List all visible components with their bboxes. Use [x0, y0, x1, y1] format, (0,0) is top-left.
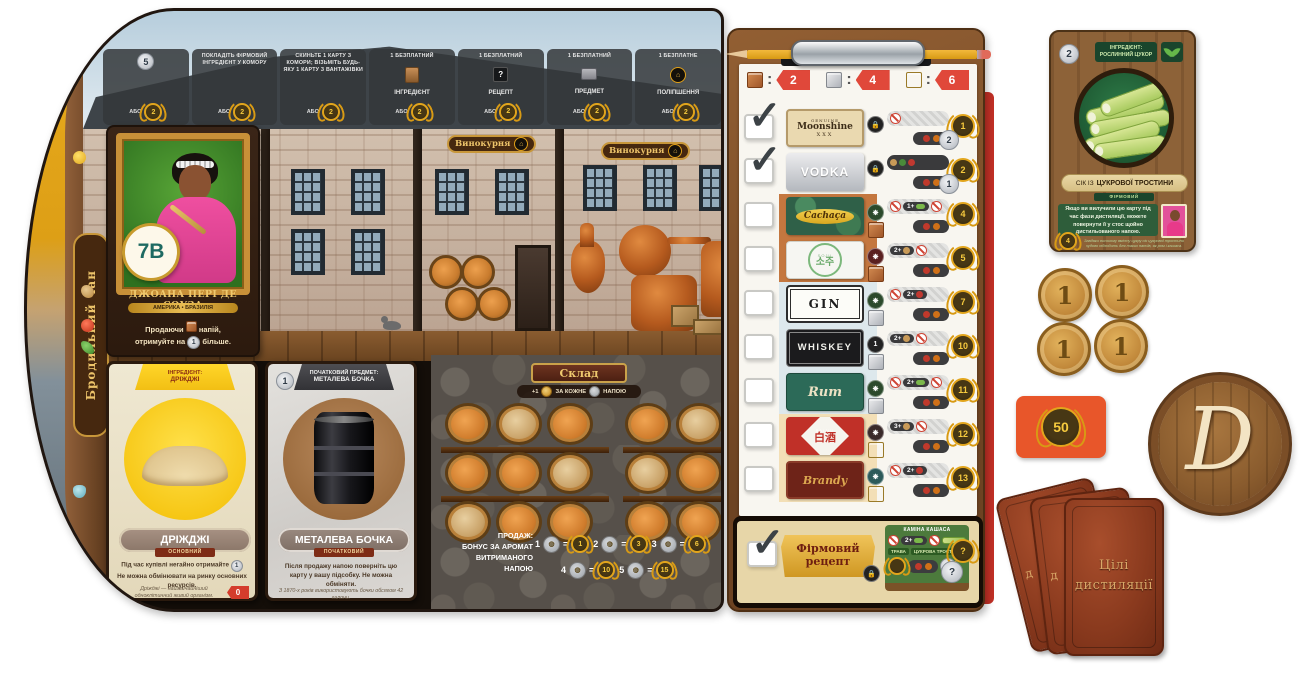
checkbox[interactable] [744, 202, 774, 228]
checkbox[interactable] [744, 422, 774, 448]
spirit-cube-icon [186, 321, 197, 332]
checkmark-icon: ✓ [751, 523, 785, 563]
yeast-illustration [124, 398, 246, 520]
forbidden-icon [890, 465, 901, 476]
requirement-pill: 2+ [903, 290, 927, 299]
forbidden-icon [929, 535, 940, 546]
still-pill [913, 352, 949, 365]
requirement-pill: 3+ [890, 422, 914, 431]
recipe-pills [887, 111, 949, 126]
laurel-badge: 10 [951, 334, 975, 358]
recipe-pills: 2+ [887, 287, 949, 302]
window [643, 165, 677, 211]
forbidden-icon [890, 289, 901, 300]
laurel-badge: 7 [951, 290, 975, 314]
barrel-illustration [283, 398, 405, 520]
still-pill [913, 396, 949, 409]
action-swap-card[interactable]: СКИНЬТЕ 1 КАРТУ З КОМОРИ; ВІЗЬМІТЬ БУДЬ-… [280, 49, 366, 125]
still-pill [913, 264, 949, 277]
checkbox[interactable]: ✓ [747, 541, 777, 567]
lock-icon: 🔒 [867, 160, 884, 177]
action-free-ingredient[interactable]: 1 БЕЗПЛАТНИЙ ІНГРЕДІЄНТ АБО2 [369, 49, 455, 125]
aroma-token-icon: ◍ [601, 536, 618, 553]
warehouse-bonus-note: +1 ЗА КОЖНЕ НАПОЮ [517, 385, 641, 398]
cube-cost-row: :2 :4 :6 [739, 70, 977, 90]
yeast-icon: ❋ [867, 204, 884, 221]
window [435, 169, 469, 215]
warehouse-sign: Склад [531, 363, 627, 383]
sugar-cane-icon [916, 380, 925, 385]
character-region: АМЕРИКА • БРАЗИЛІЯ [128, 303, 238, 313]
silver-cube-icon [868, 398, 884, 414]
coin-icon: 1 [231, 560, 243, 572]
action-text: 1 БЕЗПЛАТНИЙ [568, 53, 611, 60]
grain-icon [903, 423, 910, 430]
spirit-row-soju[interactable]: SOJU소주 ❋ 2+ 5 [739, 238, 977, 282]
cost-coin-badge: 2 [1059, 44, 1079, 64]
coin-badge: 1 [939, 174, 959, 194]
forbidden-icon [888, 535, 899, 546]
aroma-token-icon: ◍ [660, 536, 677, 553]
item-card-icon [581, 68, 597, 80]
cost-silver: :4 [826, 70, 889, 90]
signature-recipe-strip[interactable]: ✓ Фірмовий рецепт 🔒 КАМІНА КАШАСА 2+ Т [733, 516, 983, 608]
requirement-pill: 2+ [890, 246, 914, 255]
action-text: 1 БЕЗПЛАТНИЙ [390, 53, 433, 60]
action-free-upgrade[interactable]: 1 БЕЗПЛАТНЕ ⌂ ПОЛІПШЕННЯ АБО2 [635, 49, 721, 125]
sugarcane-ingredient-card[interactable]: 2 ІНГРЕДІЄНТ: РОСЛИННИЙ ЦУКОР СІК ІЗ ЦУК… [1049, 30, 1196, 252]
barrel [625, 452, 671, 494]
requirement-pill: 1+ [903, 202, 929, 211]
silver-cube-icon [868, 354, 884, 370]
laurel-badge: 10 [597, 561, 615, 579]
sign-label: Винокурня [609, 146, 664, 156]
portrait-face [179, 165, 211, 201]
laurel-badge: 4 [951, 202, 975, 226]
action-label: РЕЦЕПТ [489, 90, 513, 96]
yeast-icon: ❋ [867, 468, 884, 485]
barrel [496, 452, 542, 494]
spirit-row-rum[interactable]: Rum ❋ 2+ 11 [739, 370, 977, 414]
goal-card-front[interactable]: Цілі дистиляції [1064, 498, 1164, 656]
laurel-badge: 50 [1041, 407, 1081, 447]
signature-recipe-plaque: Фірмовий рецепт [781, 535, 875, 577]
table-surface: 5 АБО2 ПОКЛАДІТЬ ФІРМОВИЙ ІНГРЕДІЄНТ У К… [0, 0, 1299, 685]
plant-icon [899, 159, 906, 166]
barrel [547, 452, 593, 494]
price-tag: 2 [776, 70, 810, 90]
spirit-row-baijiu[interactable]: BAIJIU 白酒 ❋ 3+ 12 [739, 414, 977, 458]
aroma-token-icon: ◍ [569, 562, 586, 579]
upgrade-icon: ⌂ [670, 67, 686, 83]
spirit-label-gin: GIN [786, 285, 864, 323]
checkbox[interactable] [744, 466, 774, 492]
coin-icon [541, 386, 552, 397]
spirit-label-rum: Rum [786, 373, 864, 411]
checkbox[interactable] [744, 246, 774, 272]
character-card[interactable]: 7B ДЖОАНА ПЕРІ ДЕ СОУЗА АМЕРИКА • БРАЗИЛ… [106, 125, 260, 357]
character-thumbnail [1161, 204, 1187, 238]
window [583, 165, 617, 211]
spirit-label-soju: SOJU소주 [786, 241, 864, 279]
soju-ring: SOJU소주 [808, 243, 842, 277]
window [291, 169, 325, 215]
sign-label: Винокурня [455, 139, 510, 149]
action-text: СКИНЬТЕ 1 КАРТУ З КОМОРИ; ВІЗЬМІТЬ БУДЬ-… [282, 53, 364, 74]
coin-unknown-badge: ? [941, 561, 963, 583]
silver-cube-icon [826, 72, 842, 88]
window [291, 229, 325, 275]
action-text: ПОКЛАДІТЬ ФІРМОВИЙ ІНГРЕДІЄНТ У КОМОРУ [194, 53, 276, 67]
laurel-badge: 5 [951, 246, 975, 270]
aroma-bonus-row: 4◍=10 5◍=15 [561, 561, 674, 579]
laurel-badge: 6 [688, 535, 706, 553]
requirement-pill: 2+ [903, 378, 929, 387]
parchment: ✓ Фірмовий рецепт 🔒 КАМІНА КАШАСА 2+ Т [737, 521, 979, 603]
laurel-badge: 15 [656, 561, 674, 579]
barrel-chip-icon [589, 386, 600, 397]
recipe-pills: 2+ [887, 243, 949, 258]
grass-tag: ТРАВА [888, 548, 909, 555]
recipe-pills [887, 155, 949, 170]
action-coins[interactable]: 5 АБО2 [103, 49, 189, 125]
checkbox[interactable] [744, 290, 774, 316]
coin-badge: 2 [939, 130, 959, 150]
laurel-badge [888, 557, 906, 575]
still-pill [913, 308, 949, 321]
spirit-label-whiskey: WHISKEY [786, 329, 864, 367]
price-tag: 4 [856, 70, 890, 90]
laurel-badge: 2 [499, 103, 517, 121]
forbidden-icon [890, 377, 901, 388]
action-label: ПОЛІПШЕННЯ [657, 90, 699, 96]
beam [413, 129, 422, 361]
checkmark-icon: ✓ [748, 96, 782, 136]
aroma-token-icon: ◍ [543, 536, 560, 553]
yeast-ingredient-card[interactable]: ІНГРЕДІЄНТ: ДРІЖДЖІ ДРІЖДЖІ ОСНОВНИЙ Під… [106, 361, 258, 601]
laurel-badge: 2 [677, 103, 695, 121]
character-number-badge: 7B [122, 223, 180, 281]
requirement-pill: 2+ [890, 334, 914, 343]
logo-letter: D [1186, 397, 1255, 483]
yeast-icon: ❋ [867, 292, 884, 309]
sugar-cane-icon [916, 204, 925, 209]
grain-icon [903, 335, 910, 342]
player-board: 5 АБО2 ПОКЛАДІТЬ ФІРМОВИЙ ІНГРЕДІЄНТ У К… [24, 8, 724, 612]
goal-card-title: Цілі дистиляції [1066, 556, 1162, 595]
barrel [625, 403, 671, 445]
recipe-pills: 2+ [887, 331, 949, 346]
card-subtitle: ОСНОВНИЙ [155, 548, 215, 557]
laurel-badge: 4 [1059, 232, 1077, 250]
grain-icon [890, 159, 897, 166]
card-title: СІК ІЗ ЦУКРОВОЇ ТРОСТИНИ [1061, 174, 1188, 192]
aroma-bonus-note: ПРОДАЖ: БОНУС ЗА АРОМАТ ВИТРИМАНОГО НАПО… [437, 531, 533, 575]
action-free-item[interactable]: 1 БЕЗПЛАТНИЙ ПРЕДМЕТ АБО2 [547, 49, 633, 125]
laurel-badge: 12 [951, 422, 975, 446]
warehouse-section: Склад +1 ЗА КОЖНЕ НАПОЮ [431, 355, 724, 612]
sugarcane-illustration [1074, 68, 1174, 168]
checkbox[interactable]: ✓ [744, 114, 774, 140]
yeast-icon: ❋ [867, 248, 884, 265]
distillery-sign: Винокурня ⌂ [447, 135, 536, 153]
still-neck [580, 223, 594, 247]
lock-icon: 🔒 [867, 116, 884, 133]
recipe-pills: 1+ [887, 199, 949, 214]
spirit-row-vodka[interactable]: ✓ VODKA 🔒 2 1 [739, 150, 977, 194]
yeast-pile [142, 446, 228, 486]
barrel [547, 403, 593, 445]
recipe-card-icon: ? [493, 67, 508, 82]
action-label: ПРЕДМЕТ [575, 89, 604, 95]
barrel [496, 403, 542, 445]
spirit-label-baijiu: BAIJIU 白酒 [786, 417, 864, 455]
forbidden-icon [890, 113, 901, 124]
house-icon: ⌂ [514, 137, 528, 151]
fruit-icon [916, 467, 923, 474]
forbidden-icon [890, 201, 901, 212]
forbidden-icon [931, 377, 942, 388]
character-ability: Продаючи напій, отримуйте на 1 більше. [112, 321, 254, 349]
gold-cube-icon [906, 72, 922, 88]
checklist-paper: :2 :4 :6 ✓ GENUINE Moonshine XXX 🔒 1 2 [739, 64, 977, 516]
metal-barrel [314, 412, 374, 504]
card-flavor: З 1870-х років використовують бочки обся… [278, 588, 404, 603]
goal-card-letter: д [1049, 568, 1058, 583]
action-free-recipe[interactable]: 1 БЕЗПЛАТНИЙ ? РЕЦЕПТ АБО2 [458, 49, 544, 125]
grain-icon [73, 151, 86, 164]
score-50-card[interactable]: 50 [1016, 396, 1106, 458]
goal-card-letter: д [1023, 566, 1034, 581]
yeast-icon: ❋ [867, 424, 884, 441]
window [699, 165, 724, 211]
gold-cube-icon [868, 486, 884, 502]
card-flavor: Завдяки високому вмісту цукру сік цукров… [1081, 238, 1187, 251]
window [495, 169, 529, 215]
card-rule: Після продажу напою поверніть цю карту у… [276, 562, 406, 589]
laurel-badge: 2 [322, 103, 340, 121]
spirit-row-cachaca[interactable]: Cachaça ❋ 1+ 4 [739, 194, 977, 238]
juniper-icon [916, 291, 923, 298]
action-label: ІНГРЕДІЄНТ [394, 90, 430, 96]
clipboard-clip [791, 40, 925, 66]
coin-icon: 1 [187, 336, 200, 349]
laurel-badge: 2 [144, 103, 162, 121]
barrel [676, 403, 722, 445]
barrel [477, 287, 511, 321]
spirit-label-cachaca: Cachaça [786, 197, 864, 235]
barrel [445, 452, 491, 494]
wheat-icon [81, 285, 94, 298]
barrel [445, 403, 491, 445]
spirit-label-vodka: VODKA [786, 153, 864, 191]
spirit-row-brandy[interactable]: Brandy ❋ 2+ 13 [739, 458, 977, 502]
brown-cube-icon [868, 222, 884, 238]
forbidden-icon [916, 421, 927, 432]
silver-cube-icon [868, 310, 884, 326]
price-tag: 6 [935, 70, 969, 90]
distillery-sign: Винокурня ⌂ [601, 142, 690, 160]
checkbox[interactable]: ✓ [744, 158, 774, 184]
plant-sugar-icon [1161, 42, 1183, 62]
still-pill [913, 220, 949, 233]
still-pill [913, 484, 949, 497]
card-flavor: Дріжджі — найзвичайніший одноклітинний ж… [123, 586, 225, 601]
card-header: ІНГРЕДІЄНТ: РОСЛИННИЙ ЦУКОР [1095, 42, 1157, 62]
card-subtitle: ФІРМОВИЙ [1094, 193, 1154, 201]
coin-token[interactable]: 1 [1095, 265, 1149, 319]
spirit-label-moonshine: GENUINE Moonshine XXX [786, 109, 864, 147]
laurel-badge: 2 [588, 103, 606, 121]
action-text: 1 БЕЗПЛАТНИЙ [479, 53, 522, 60]
barrel [445, 287, 479, 321]
checkbox[interactable] [744, 334, 774, 360]
coin-icon: 1 [276, 372, 294, 390]
barrel [676, 452, 722, 494]
copper-tank [701, 241, 724, 317]
sugar-cane-icon [914, 538, 923, 543]
laurel-unknown-badge: ? [951, 539, 975, 563]
copper-still-dome [619, 225, 671, 277]
coin-token[interactable]: 1 [1094, 319, 1148, 373]
laurel-badge: 11 [951, 378, 975, 402]
coin-token[interactable]: 1 [1037, 322, 1091, 376]
gold-cube-icon [868, 442, 884, 458]
coin-stack-icon: 5 [137, 53, 154, 70]
aroma-token-icon: ◍ [627, 562, 644, 579]
lock-icon: 🔒 [863, 565, 880, 582]
fruit-icon [81, 319, 94, 332]
barrel-rack-right[interactable] [625, 403, 724, 547]
action-track: 5 АБО2 ПОКЛАДІТЬ ФІРМОВИЙ ІНГРЕДІЄНТ У К… [103, 49, 721, 125]
laurel-badge: 13 [951, 466, 975, 490]
price-tag: 0 [227, 586, 249, 599]
still-pill [913, 440, 949, 453]
cost-gold: :6 [906, 70, 969, 90]
barrel-rack-left[interactable] [445, 403, 595, 547]
aroma-bonus-row: 1◍=1 2◍=3 3◍=6 [535, 535, 706, 553]
barrel [461, 255, 495, 289]
crate [693, 319, 723, 335]
yeast-icon: ❋ [867, 380, 884, 397]
recipe-pills: 3+ [887, 419, 949, 434]
spirit-row-whiskey[interactable]: WHISKEY 1 2+ 10 [739, 326, 977, 370]
beam [261, 129, 270, 361]
spirit-row-gin[interactable]: GIN ❋ 2+ 7 [739, 282, 977, 326]
action-text: 1 БЕЗПЛАТНЕ [659, 53, 698, 60]
still-pill [908, 560, 938, 573]
door [515, 245, 551, 331]
card-subtitle: ПОЧАТКОВИЙ [314, 548, 374, 557]
recipe-name: КАМІНА КАШАСА [888, 527, 966, 533]
house-icon: ⌂ [668, 144, 682, 158]
laurel-badge: 3 [630, 535, 648, 553]
laurel-badge: 1 [571, 535, 589, 553]
card-header: ІНГРЕДІЄНТ: ДРІЖДЖІ [135, 364, 235, 390]
laurel-badge: 2 [411, 103, 429, 121]
card-header: ПОЧАТКОВИЙ ПРЕДМЕТ: МЕТАЛЕВА БОЧКА [294, 364, 394, 390]
brown-cube-icon [747, 72, 763, 88]
ingredient-card-icon [405, 67, 419, 83]
fruit-icon [908, 159, 915, 166]
requirement-pill: 2+ [903, 466, 927, 475]
grain-icon [903, 247, 910, 254]
checkbox[interactable] [744, 378, 774, 404]
window [351, 229, 385, 275]
recipe-pills: 2+ [887, 463, 949, 478]
barrel [429, 255, 463, 289]
fermentation-vat-plaque: Бродильний чан [73, 233, 109, 437]
forbidden-icon [916, 245, 927, 256]
beam [555, 129, 564, 361]
copper-still-small [571, 241, 605, 293]
forbidden-icon [931, 201, 942, 212]
recipe-pills: 2+ [887, 375, 949, 390]
checkmark-icon: ✓ [748, 140, 782, 180]
cat [383, 321, 401, 330]
metal-barrel-item-card[interactable]: ПОЧАТКОВИЙ ПРЕДМЕТ: МЕТАЛЕВА БОЧКА 1 МЕТ… [265, 361, 417, 601]
coin-token[interactable]: 1 [1038, 268, 1092, 322]
spirit-label-brandy: Brandy [786, 461, 864, 499]
laurel-badge: 2 [233, 103, 251, 121]
distilled-logo-token[interactable]: D [1158, 382, 1282, 506]
brown-cube-icon [868, 266, 884, 282]
cost-brown: :2 [747, 70, 810, 90]
forbidden-icon [916, 333, 927, 344]
requirement-pill: 2+ [901, 536, 927, 545]
cost-coin-badge: 1 [276, 372, 294, 390]
spirits-clipboard[interactable]: :2 :4 :6 ✓ GENUINE Moonshine XXX 🔒 1 2 [727, 28, 985, 612]
action-place-ingredient[interactable]: ПОКЛАДІТЬ ФІРМОВИЙ ІНГРЕДІЄНТ У КОМОРУ А… [192, 49, 278, 125]
window [351, 169, 385, 215]
barrel-count-icon: 1 [867, 336, 884, 353]
